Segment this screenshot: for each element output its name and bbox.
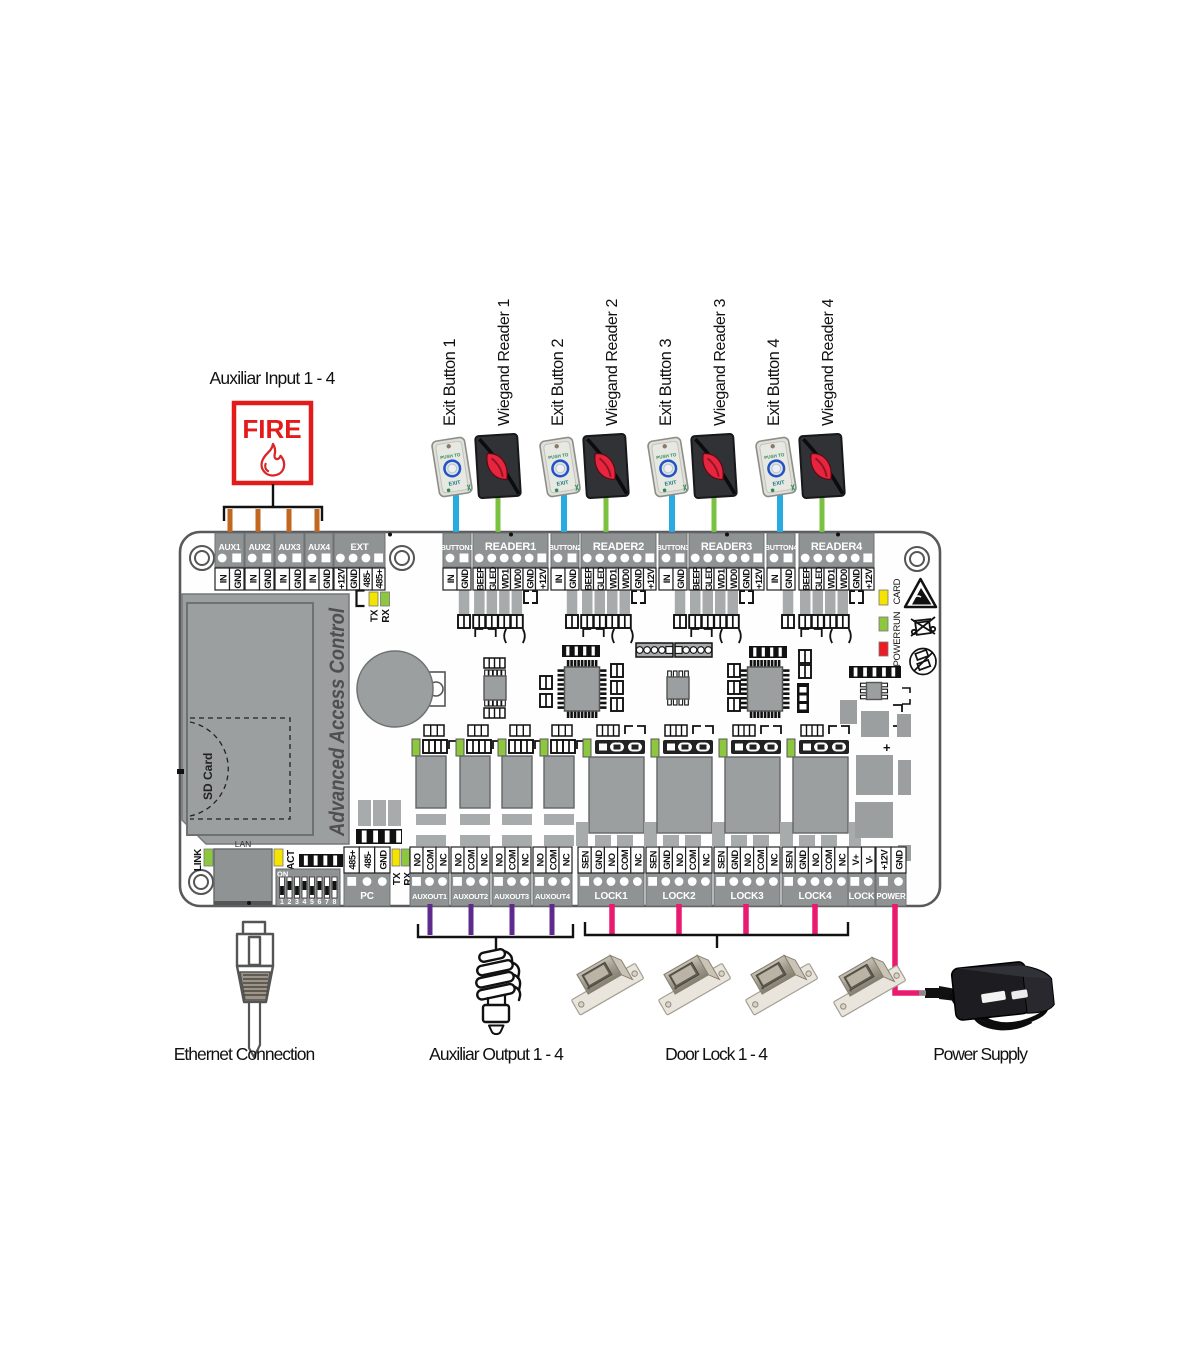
svg-text:AUXOUT4: AUXOUT4 (535, 892, 571, 901)
svg-text:LOCK2: LOCK2 (663, 891, 697, 902)
svg-text:1: 1 (280, 899, 284, 906)
svg-text:+12V: +12V (863, 568, 874, 589)
svg-text:NC: NC (520, 853, 531, 866)
svg-text:WD1: WD1 (499, 569, 510, 589)
svg-text:GND: GND (262, 569, 273, 589)
svg-text:IN: IN (769, 574, 780, 583)
svg-text:V+: V+ (850, 854, 861, 866)
svg-text:NC: NC (836, 853, 847, 866)
svg-text:COM: COM (425, 849, 436, 870)
svg-text:+12V: +12V (537, 568, 548, 589)
svg-text:BEEP: BEEP (800, 567, 811, 591)
svg-text:IN: IN (247, 574, 258, 583)
svg-text:Advanced Access Control: Advanced Access Control (326, 607, 349, 837)
svg-text:NC: NC (632, 853, 643, 866)
svg-text:Auxiliar Output 1 - 4: Auxiliar Output 1 - 4 (429, 1044, 564, 1064)
svg-text:GND: GND (567, 569, 578, 589)
svg-text:+12V: +12V (753, 568, 764, 589)
svg-text:AUX4: AUX4 (308, 542, 330, 552)
svg-text:READER4: READER4 (811, 541, 863, 553)
svg-text:485+: 485+ (374, 568, 385, 588)
svg-text:IN: IN (307, 574, 318, 583)
svg-text:WD1: WD1 (715, 569, 726, 589)
svg-text:WD1: WD1 (825, 569, 836, 589)
svg-text:IN: IN (277, 574, 288, 583)
svg-text:EXT: EXT (351, 542, 369, 553)
svg-text:NO: NO (535, 853, 546, 866)
svg-text:TX: TX (370, 609, 381, 622)
svg-text:2: 2 (288, 899, 292, 906)
svg-text:V-: V- (863, 856, 874, 864)
svg-text:GND: GND (783, 569, 794, 589)
svg-text:NO: NO (674, 853, 685, 866)
svg-text:GND: GND (894, 850, 905, 870)
svg-text:NO: NO (453, 853, 464, 866)
svg-text:COM: COM (619, 849, 630, 870)
svg-text:IN: IN (661, 574, 672, 583)
svg-text:POWER: POWER (876, 892, 906, 901)
svg-text:Auxiliar Input 1 - 4: Auxiliar Input 1 - 4 (209, 368, 335, 388)
svg-text:NO: NO (810, 853, 821, 866)
svg-text:NC: NC (561, 853, 572, 866)
svg-text:BEEP: BEEP (690, 567, 701, 591)
svg-text:PC: PC (360, 891, 374, 902)
svg-text:Exit Button 2: Exit Button 2 (549, 339, 567, 426)
svg-text:AUXOUT2: AUXOUT2 (453, 892, 488, 901)
svg-text:485-: 485- (361, 570, 372, 587)
svg-text:GLED: GLED (813, 566, 824, 591)
svg-text:IN: IN (445, 574, 456, 583)
svg-text:COM: COM (823, 849, 834, 870)
svg-text:LOCK: LOCK (848, 891, 874, 902)
svg-text:485+: 485+ (347, 849, 358, 869)
svg-text:READER1: READER1 (485, 541, 536, 553)
svg-text:GLED: GLED (595, 566, 606, 591)
svg-text:3: 3 (295, 899, 299, 906)
svg-text:LINK: LINK (193, 848, 204, 871)
svg-text:IN: IN (553, 574, 564, 583)
svg-text:BEEP: BEEP (582, 567, 593, 591)
svg-text:SEN: SEN (784, 850, 795, 869)
svg-text:SEN: SEN (716, 850, 727, 869)
svg-text:GND: GND (661, 850, 672, 870)
svg-text:Exit Button 1: Exit Button 1 (441, 339, 459, 426)
svg-text:8: 8 (333, 899, 337, 906)
svg-text:LAN: LAN (235, 839, 252, 849)
svg-text:TX: TX (392, 872, 403, 885)
svg-text:ACT: ACT (286, 850, 297, 870)
svg-text:GLED: GLED (703, 566, 714, 591)
svg-text:BUTTON4: BUTTON4 (765, 543, 798, 552)
svg-text:COM: COM (548, 849, 559, 870)
svg-text:SEN: SEN (580, 850, 591, 869)
svg-text:7: 7 (325, 899, 329, 906)
svg-text:LOCK3: LOCK3 (731, 891, 765, 902)
svg-text:COM: COM (466, 849, 477, 870)
svg-text:NC: NC (479, 853, 490, 866)
svg-text:NC: NC (700, 853, 711, 866)
svg-text:NC: NC (438, 853, 449, 866)
svg-text:GND: GND (729, 850, 740, 870)
svg-text:SEN: SEN (648, 850, 659, 869)
svg-text:READER2: READER2 (593, 541, 644, 553)
svg-text:BUTTON3: BUTTON3 (657, 543, 690, 552)
svg-text:WD0: WD0 (512, 569, 523, 589)
svg-text:NO: NO (412, 853, 423, 866)
svg-text:GND: GND (292, 569, 303, 589)
svg-text:BUTTON1: BUTTON1 (441, 543, 474, 552)
svg-text:Door Lock 1 - 4: Door Lock 1 - 4 (665, 1044, 768, 1064)
svg-text:AUXOUT3: AUXOUT3 (494, 892, 529, 901)
svg-text:GND: GND (524, 569, 535, 589)
svg-text:+12V: +12V (335, 568, 346, 589)
svg-text:AUXOUT1: AUXOUT1 (412, 892, 448, 901)
svg-text:GND: GND (348, 569, 359, 589)
svg-text:WD1: WD1 (607, 569, 618, 589)
svg-text:+12V: +12V (879, 849, 890, 870)
svg-text:POWER: POWER (892, 632, 903, 667)
svg-text:RUN: RUN (892, 611, 903, 631)
svg-text:GND: GND (377, 850, 388, 870)
svg-text:Wiegand Reader 1: Wiegand Reader 1 (496, 298, 513, 426)
svg-text:Wiegand Reader 2: Wiegand Reader 2 (604, 298, 621, 426)
svg-text:LOCK1: LOCK1 (595, 891, 629, 902)
svg-text:AUX3: AUX3 (279, 542, 301, 552)
svg-text:NO: NO (606, 853, 617, 866)
svg-text:CARD: CARD (892, 578, 903, 604)
svg-text:GND: GND (593, 850, 604, 870)
svg-text:WD0: WD0 (620, 569, 631, 589)
svg-text:GND: GND (740, 569, 751, 589)
svg-text:GND: GND (797, 850, 808, 870)
svg-text:BUTTON2: BUTTON2 (549, 543, 582, 552)
svg-text:AUX1: AUX1 (219, 542, 241, 552)
svg-text:485-: 485- (362, 851, 373, 868)
svg-text:SD Card: SD Card (201, 753, 215, 800)
svg-text:+: + (883, 740, 891, 755)
svg-text:Exit Button 4: Exit Button 4 (765, 339, 783, 426)
svg-text:COM: COM (687, 849, 698, 870)
svg-text:Wiegand Reader 3: Wiegand Reader 3 (712, 298, 729, 426)
svg-text:WD0: WD0 (838, 569, 849, 589)
svg-text:5: 5 (310, 899, 314, 906)
svg-text:GND: GND (232, 569, 243, 589)
svg-text:GND: GND (459, 569, 470, 589)
svg-text:6: 6 (318, 899, 322, 906)
svg-text:COM: COM (507, 849, 518, 870)
svg-text:GND: GND (850, 569, 861, 589)
svg-text:GND: GND (675, 569, 686, 589)
svg-text:AUX2: AUX2 (249, 542, 271, 552)
svg-text:GND: GND (632, 569, 643, 589)
svg-text:NO: NO (494, 853, 505, 866)
svg-text:GND: GND (321, 569, 332, 589)
svg-text:WD0: WD0 (728, 569, 739, 589)
svg-text:Power Supply: Power Supply (933, 1044, 1028, 1064)
svg-text:IN: IN (217, 574, 228, 583)
svg-text:Wiegand Reader 4: Wiegand Reader 4 (820, 298, 837, 426)
svg-text:LOCK4: LOCK4 (799, 891, 833, 902)
svg-text:Ethernet Connection: Ethernet Connection (174, 1044, 315, 1064)
svg-text:Exit Button 3: Exit Button 3 (657, 339, 675, 426)
svg-text:NC: NC (768, 853, 779, 866)
svg-text:READER3: READER3 (701, 541, 752, 553)
svg-text:BEEP: BEEP (474, 567, 485, 591)
svg-text:+12V: +12V (645, 568, 656, 589)
svg-text:4: 4 (303, 899, 307, 906)
svg-text:COM: COM (755, 849, 766, 870)
svg-text:GLED: GLED (487, 566, 498, 591)
svg-text:NO: NO (742, 853, 753, 866)
svg-text:RX: RX (381, 609, 392, 623)
svg-text:FIRE: FIRE (242, 414, 301, 444)
